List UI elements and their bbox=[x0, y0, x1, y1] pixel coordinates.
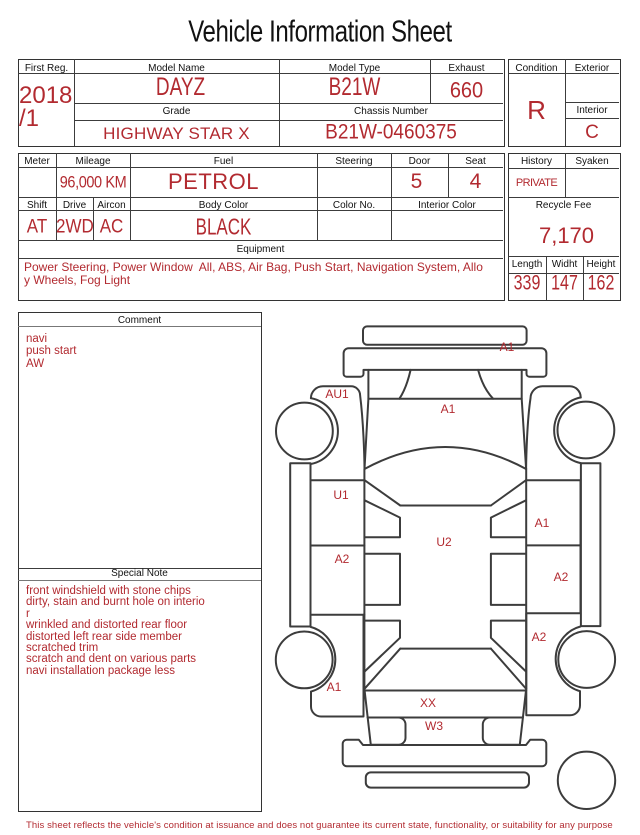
svg-text:U1: U1 bbox=[333, 488, 349, 502]
svg-text:AU1: AU1 bbox=[325, 387, 349, 401]
svg-text:A2: A2 bbox=[335, 552, 350, 566]
svg-text:A1: A1 bbox=[327, 680, 342, 694]
svg-text:A1: A1 bbox=[535, 516, 550, 530]
svg-text:XX: XX bbox=[420, 696, 436, 710]
svg-text:A1: A1 bbox=[441, 402, 456, 416]
svg-text:W3: W3 bbox=[425, 719, 443, 733]
svg-text:A2: A2 bbox=[532, 630, 547, 644]
svg-text:U2: U2 bbox=[436, 535, 452, 549]
svg-text:A1: A1 bbox=[500, 340, 515, 354]
svg-text:A2: A2 bbox=[554, 570, 569, 584]
